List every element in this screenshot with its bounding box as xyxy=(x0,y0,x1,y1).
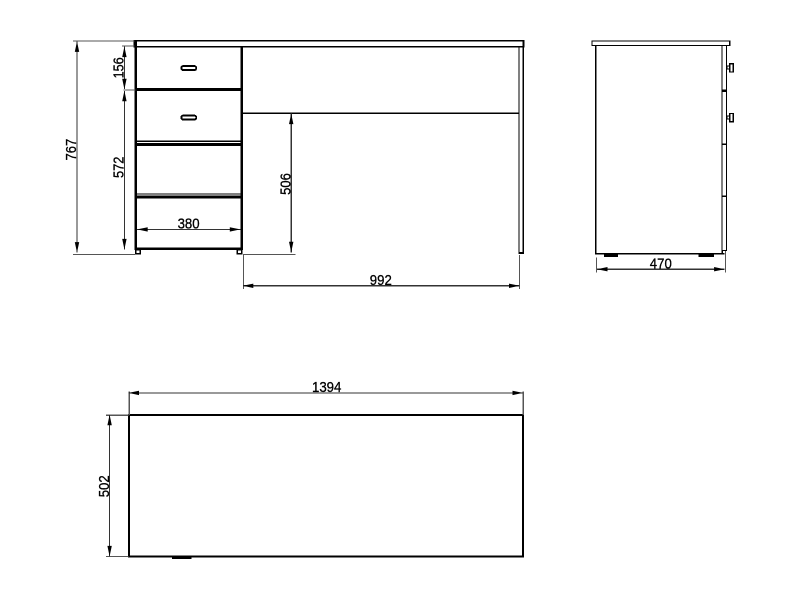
svg-text:572: 572 xyxy=(111,157,128,179)
svg-text:1394: 1394 xyxy=(312,379,342,396)
svg-text:380: 380 xyxy=(178,215,200,232)
svg-text:502: 502 xyxy=(96,475,113,497)
svg-text:470: 470 xyxy=(650,255,672,272)
svg-text:992: 992 xyxy=(370,272,392,289)
svg-text:506: 506 xyxy=(277,173,294,195)
svg-text:156: 156 xyxy=(111,57,128,78)
svg-text:767: 767 xyxy=(63,139,80,161)
